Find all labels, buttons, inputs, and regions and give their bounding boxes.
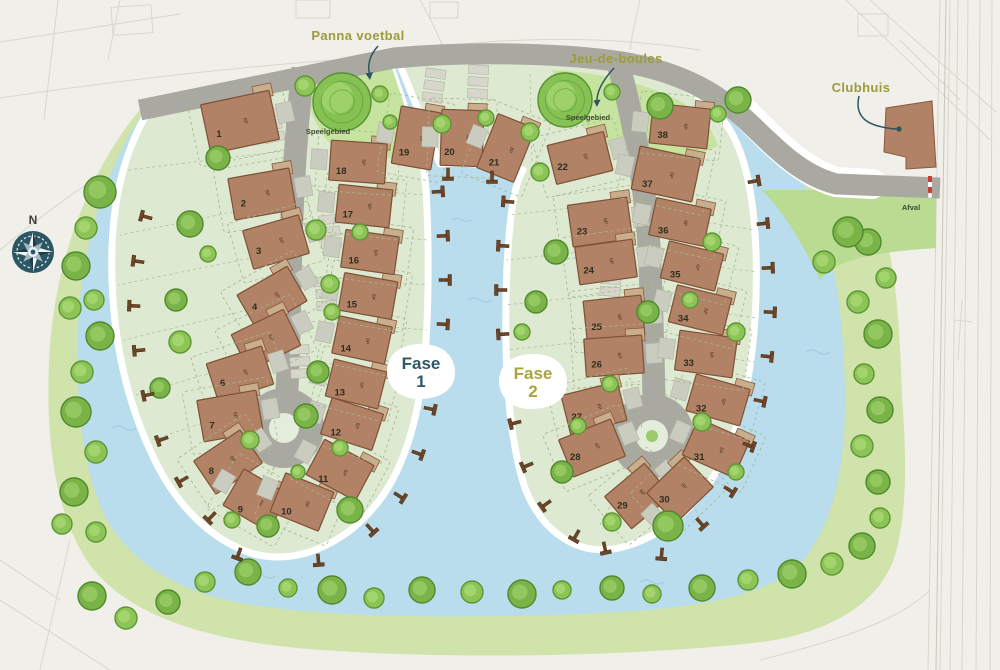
fase2-badge: Fase 2: [499, 354, 567, 409]
tree-icon: [332, 440, 348, 456]
tree-icon: [637, 301, 659, 323]
tree-icon: [291, 465, 305, 479]
tree-icon: [553, 581, 571, 599]
house-body: [575, 239, 638, 285]
tree-icon: [738, 570, 758, 590]
fase1-badge-label: Fase: [402, 354, 441, 373]
tree-icon: [478, 110, 494, 126]
fase2-culdesac-green: [646, 430, 658, 442]
tree-icon: [306, 220, 326, 240]
house-number: 11: [318, 474, 329, 485]
house-number: 29: [617, 501, 628, 512]
tree-icon: [600, 576, 624, 600]
label-speelgebied-west: Speelgebied: [306, 127, 351, 136]
house-capacity-label: 6P: [616, 352, 622, 359]
tree-icon: [84, 176, 116, 208]
tree-icon: [653, 511, 683, 541]
house-number: 16: [349, 255, 360, 266]
tree-icon: [551, 461, 573, 483]
label-speelgebied-east: Speelgebied: [566, 113, 611, 122]
fase1-badge: Fase 1: [387, 344, 455, 399]
house-number: 10: [281, 507, 292, 518]
tree-icon: [200, 246, 216, 262]
house-number: 8: [209, 466, 214, 477]
tree-icon: [833, 217, 863, 247]
house-number: 31: [694, 452, 705, 463]
house-number: 9: [238, 505, 243, 516]
fase2-badge-label: Fase: [514, 364, 553, 383]
tree-icon: [279, 579, 297, 597]
house-number: 12: [331, 427, 342, 438]
tree-icon: [849, 533, 875, 559]
tree-icon: [177, 211, 203, 237]
house-number: 28: [570, 452, 581, 463]
tree-icon: [643, 585, 661, 603]
tree-icon: [647, 93, 673, 119]
label-panna-voetbal: Panna voetbal: [311, 28, 404, 43]
site-plan-stage: 6P16P26P36P46P56P66P76P86P96P106P116P126…: [0, 0, 1000, 670]
house-number: 15: [347, 299, 358, 310]
tree-icon: [603, 513, 621, 531]
tree-icon: [75, 217, 97, 239]
driveway-pad: [323, 236, 342, 258]
tree-icon: [710, 106, 726, 122]
tree-icon: [86, 522, 106, 542]
label-clubhuis: Clubhuis: [832, 80, 891, 95]
tree-icon: [71, 361, 93, 383]
house-number: 4: [252, 302, 258, 313]
road-barrier: [928, 176, 932, 198]
house-number: 1: [216, 129, 222, 140]
tree-icon: [514, 324, 530, 340]
tree-icon: [115, 607, 137, 629]
tree-icon: [461, 581, 483, 603]
tree-icon: [851, 435, 873, 457]
house-body: [335, 184, 393, 227]
house-number: 18: [336, 166, 347, 177]
tree-icon: [169, 331, 191, 353]
tree-icon: [725, 87, 751, 113]
tree-icon: [321, 275, 339, 293]
site-map: 6P16P26P36P46P56P66P76P86P96P106P116P126…: [0, 0, 1000, 670]
tree-icon: [409, 577, 435, 603]
driveway-pad: [657, 337, 676, 359]
driveway-pad: [261, 398, 280, 420]
house-number: 33: [683, 358, 694, 369]
compass-north-label: N: [29, 213, 38, 227]
tree-icon: [364, 588, 384, 608]
house-number: 13: [335, 387, 346, 398]
tree-icon: [383, 115, 397, 129]
house-number: 37: [642, 179, 653, 190]
tree-icon: [778, 560, 806, 588]
tree-icon: [693, 413, 711, 431]
house-number: 30: [659, 495, 670, 506]
house-body: [329, 140, 388, 184]
label-afval: Afval: [902, 203, 920, 212]
house-number: 21: [489, 157, 500, 168]
tree-icon: [59, 297, 81, 319]
tree-icon: [876, 268, 896, 288]
tree-icon: [307, 361, 329, 383]
house-number: 38: [657, 130, 668, 141]
house-number: 36: [658, 225, 669, 236]
tree-icon: [867, 397, 893, 423]
tree-icon: [870, 508, 890, 528]
tree-icon: [531, 163, 549, 181]
tree-icon: [604, 84, 620, 100]
tree-icon: [847, 291, 869, 313]
tree-icon: [821, 553, 843, 575]
tree-icon: [257, 515, 279, 537]
tree-icon: [318, 576, 346, 604]
tree-icon: [224, 512, 240, 528]
driveway-pad: [310, 149, 327, 170]
tree-icon: [84, 290, 104, 310]
fase2-badge-number: 2: [528, 382, 537, 401]
tree-icon: [165, 289, 187, 311]
clubhuis-arrow-dot-icon: [896, 126, 901, 131]
house-number: 26: [591, 359, 602, 370]
tree-icon: [352, 224, 368, 240]
tree-icon: [866, 470, 890, 494]
house-number: 34: [678, 313, 689, 324]
driveway-pad: [317, 191, 335, 213]
tree-icon: [62, 252, 90, 280]
house-number: 2: [241, 199, 246, 210]
house-number: 19: [399, 147, 410, 158]
tree-icon: [61, 397, 91, 427]
house-capacity-label: 6P: [360, 159, 366, 166]
tree-icon: [313, 73, 371, 131]
tree-icon: [521, 123, 539, 141]
house-number: 23: [577, 227, 588, 238]
tree-icon: [727, 323, 745, 341]
tree-icon: [294, 404, 318, 428]
tree-icon: [682, 292, 698, 308]
label-jeu-de-boules: Jeu-de-boules: [569, 51, 662, 66]
tree-icon: [864, 320, 892, 348]
tree-icon: [602, 376, 618, 392]
tree-icon: [337, 497, 363, 523]
house-number: 6: [220, 378, 225, 389]
tree-icon: [728, 464, 744, 480]
house-number: 20: [444, 147, 455, 158]
house-number: 17: [343, 209, 354, 220]
tree-icon: [570, 418, 586, 434]
tree-icon: [508, 580, 536, 608]
tree-icon: [85, 441, 107, 463]
house-number: 14: [341, 343, 352, 354]
tree-icon: [206, 146, 230, 170]
tree-icon: [813, 251, 835, 273]
tree-icon: [689, 575, 715, 601]
house-number: 3: [256, 246, 261, 257]
house-number: 7: [209, 421, 214, 432]
fase1-badge-number: 1: [416, 372, 425, 391]
compass-rose-icon: [12, 231, 54, 273]
tree-icon: [52, 514, 72, 534]
tree-icon: [703, 233, 721, 251]
tree-icon: [235, 559, 261, 585]
tree-icon: [525, 291, 547, 313]
tree-icon: [854, 364, 874, 384]
house-number: 35: [670, 269, 681, 280]
house-body: [341, 229, 400, 274]
house-number: 22: [557, 162, 568, 173]
tree-icon: [78, 582, 106, 610]
tree-icon: [372, 86, 388, 102]
tree-icon: [324, 304, 340, 320]
driveway-pad: [294, 175, 313, 197]
house-number: 24: [583, 265, 594, 276]
tree-icon: [60, 478, 88, 506]
tree-icon: [156, 590, 180, 614]
tree-icon: [86, 322, 114, 350]
tree-icon: [195, 572, 215, 592]
tree-icon: [241, 431, 259, 449]
driveway-pad: [631, 111, 649, 133]
parking-strip: [467, 64, 489, 98]
tree-icon: [433, 115, 451, 133]
tree-icon: [295, 76, 315, 96]
tree-icon: [544, 240, 568, 264]
